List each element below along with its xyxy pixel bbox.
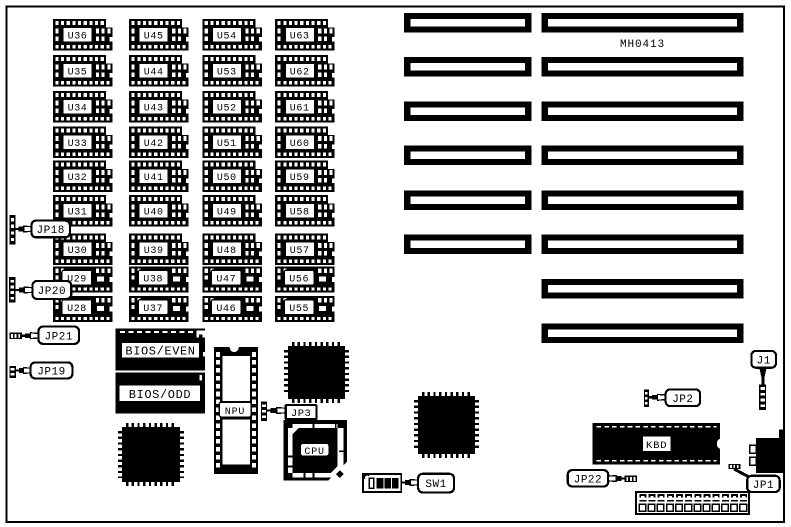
svg-text:U50: U50: [217, 173, 237, 184]
svg-text:U52: U52: [217, 103, 237, 114]
svg-text:U35: U35: [68, 67, 88, 78]
svg-text:U58: U58: [290, 207, 310, 218]
svg-text:U28: U28: [67, 304, 87, 315]
svg-text:U39: U39: [144, 246, 164, 257]
svg-text:U44: U44: [144, 67, 164, 78]
svg-text:U38: U38: [143, 275, 163, 286]
svg-text:U41: U41: [144, 173, 164, 184]
svg-text:U43: U43: [144, 103, 164, 114]
svg-text:U54: U54: [217, 31, 237, 42]
svg-text:JP2: JP2: [672, 394, 693, 406]
svg-text:JP19: JP19: [37, 366, 65, 378]
svg-text:CPU: CPU: [304, 447, 324, 458]
svg-text:U59: U59: [290, 173, 310, 184]
svg-text:U40: U40: [144, 207, 164, 218]
svg-text:NPU: NPU: [225, 407, 245, 418]
svg-text:BIOS/ODD: BIOS/ODD: [129, 388, 191, 402]
svg-text:U47: U47: [216, 275, 236, 286]
svg-text:U62: U62: [290, 67, 310, 78]
svg-text:JP22: JP22: [574, 474, 602, 486]
svg-text:U31: U31: [68, 207, 88, 218]
svg-text:U63: U63: [290, 31, 310, 42]
svg-text:JP3: JP3: [291, 408, 311, 420]
svg-text:U49: U49: [217, 207, 237, 218]
svg-text:U56: U56: [289, 275, 309, 286]
svg-text:JP18: JP18: [36, 225, 64, 237]
svg-text:U33: U33: [68, 139, 88, 150]
svg-text:U34: U34: [68, 103, 88, 114]
svg-text:U37: U37: [143, 304, 163, 315]
svg-text:U60: U60: [290, 139, 310, 150]
svg-text:U61: U61: [290, 103, 310, 114]
svg-text:U46: U46: [216, 304, 236, 315]
svg-text:U36: U36: [68, 31, 88, 42]
svg-text:SW1: SW1: [425, 479, 446, 491]
svg-text:U57: U57: [290, 246, 310, 257]
svg-text:U42: U42: [144, 139, 164, 150]
svg-text:U55: U55: [289, 304, 309, 315]
svg-text:JP20: JP20: [38, 286, 66, 298]
svg-text:JP1: JP1: [753, 480, 774, 492]
svg-text:BIOS/EVEN: BIOS/EVEN: [125, 345, 195, 359]
svg-text:J1: J1: [757, 355, 771, 367]
svg-text:U51: U51: [217, 139, 237, 150]
svg-text:KBD: KBD: [646, 440, 667, 452]
svg-text:JP21: JP21: [45, 331, 73, 343]
svg-text:U30: U30: [68, 246, 88, 257]
svg-text:MH0413: MH0413: [620, 39, 665, 51]
svg-text:U48: U48: [217, 246, 237, 257]
svg-text:U53: U53: [217, 67, 237, 78]
svg-text:U32: U32: [68, 173, 88, 184]
svg-text:U45: U45: [144, 31, 164, 42]
